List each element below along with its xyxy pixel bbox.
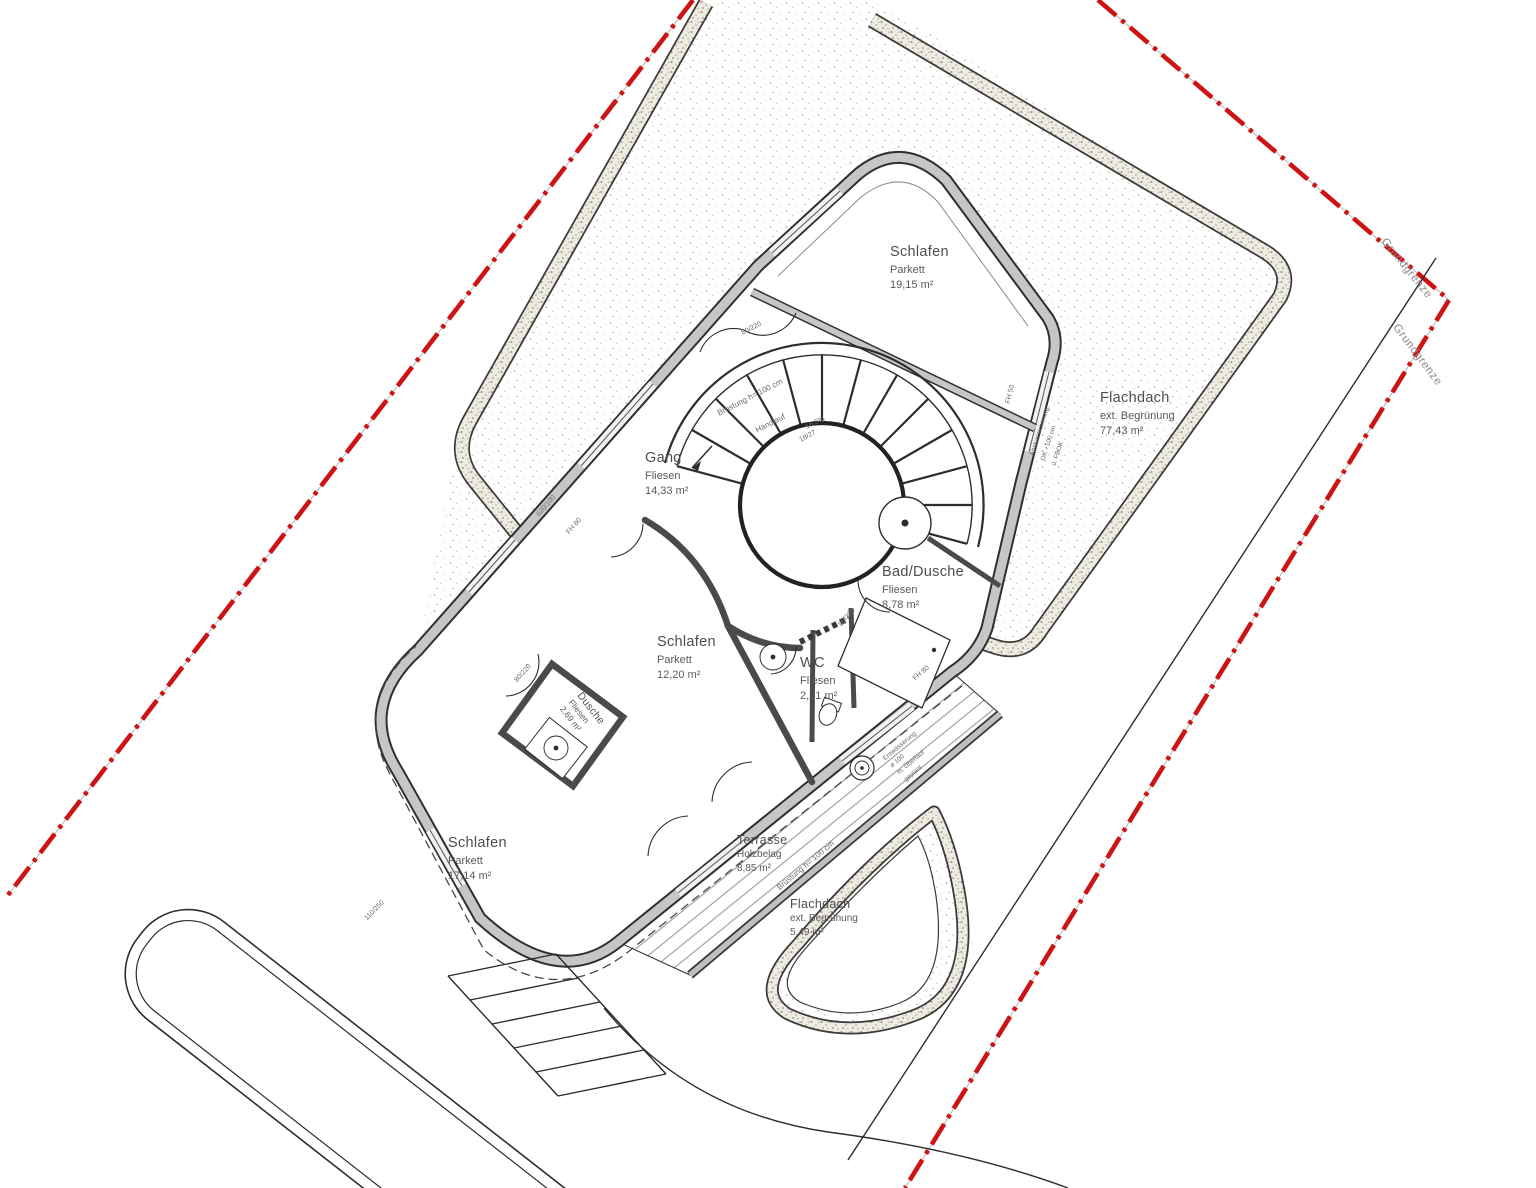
plan-canvas bbox=[0, 0, 1536, 1188]
room-label-gang: Gang Fliesen 14,33 m² bbox=[645, 450, 688, 498]
exterior-stair bbox=[448, 954, 666, 1096]
room-label-schlafen-mid: Schlafen Parkett 12,20 m² bbox=[657, 634, 716, 682]
room-label-flachdach-east: Flachdach ext. Begrünung 77,43 m² bbox=[1100, 390, 1175, 438]
room-label-terrasse: Terrasse Holzbelag 8,85 m² bbox=[737, 833, 787, 874]
room-label-schlafen-south: Schlafen Parkett 17,14 m² bbox=[448, 835, 507, 883]
floor-plan-sheet: Schlafen Parkett 19,15 m² Flachdach ext.… bbox=[0, 0, 1536, 1188]
room-label-wc: WC Fliesen 2,21 m² bbox=[800, 655, 837, 703]
room-label-schlafen-north: Schlafen Parkett 19,15 m² bbox=[890, 244, 949, 292]
room-label-flachdach-south: Flachdach ext. Begrünung 5,49 m² bbox=[790, 897, 858, 938]
room-label-bad-dusche: Bad/Dusche Fliesen 8,78 m² bbox=[882, 564, 964, 612]
